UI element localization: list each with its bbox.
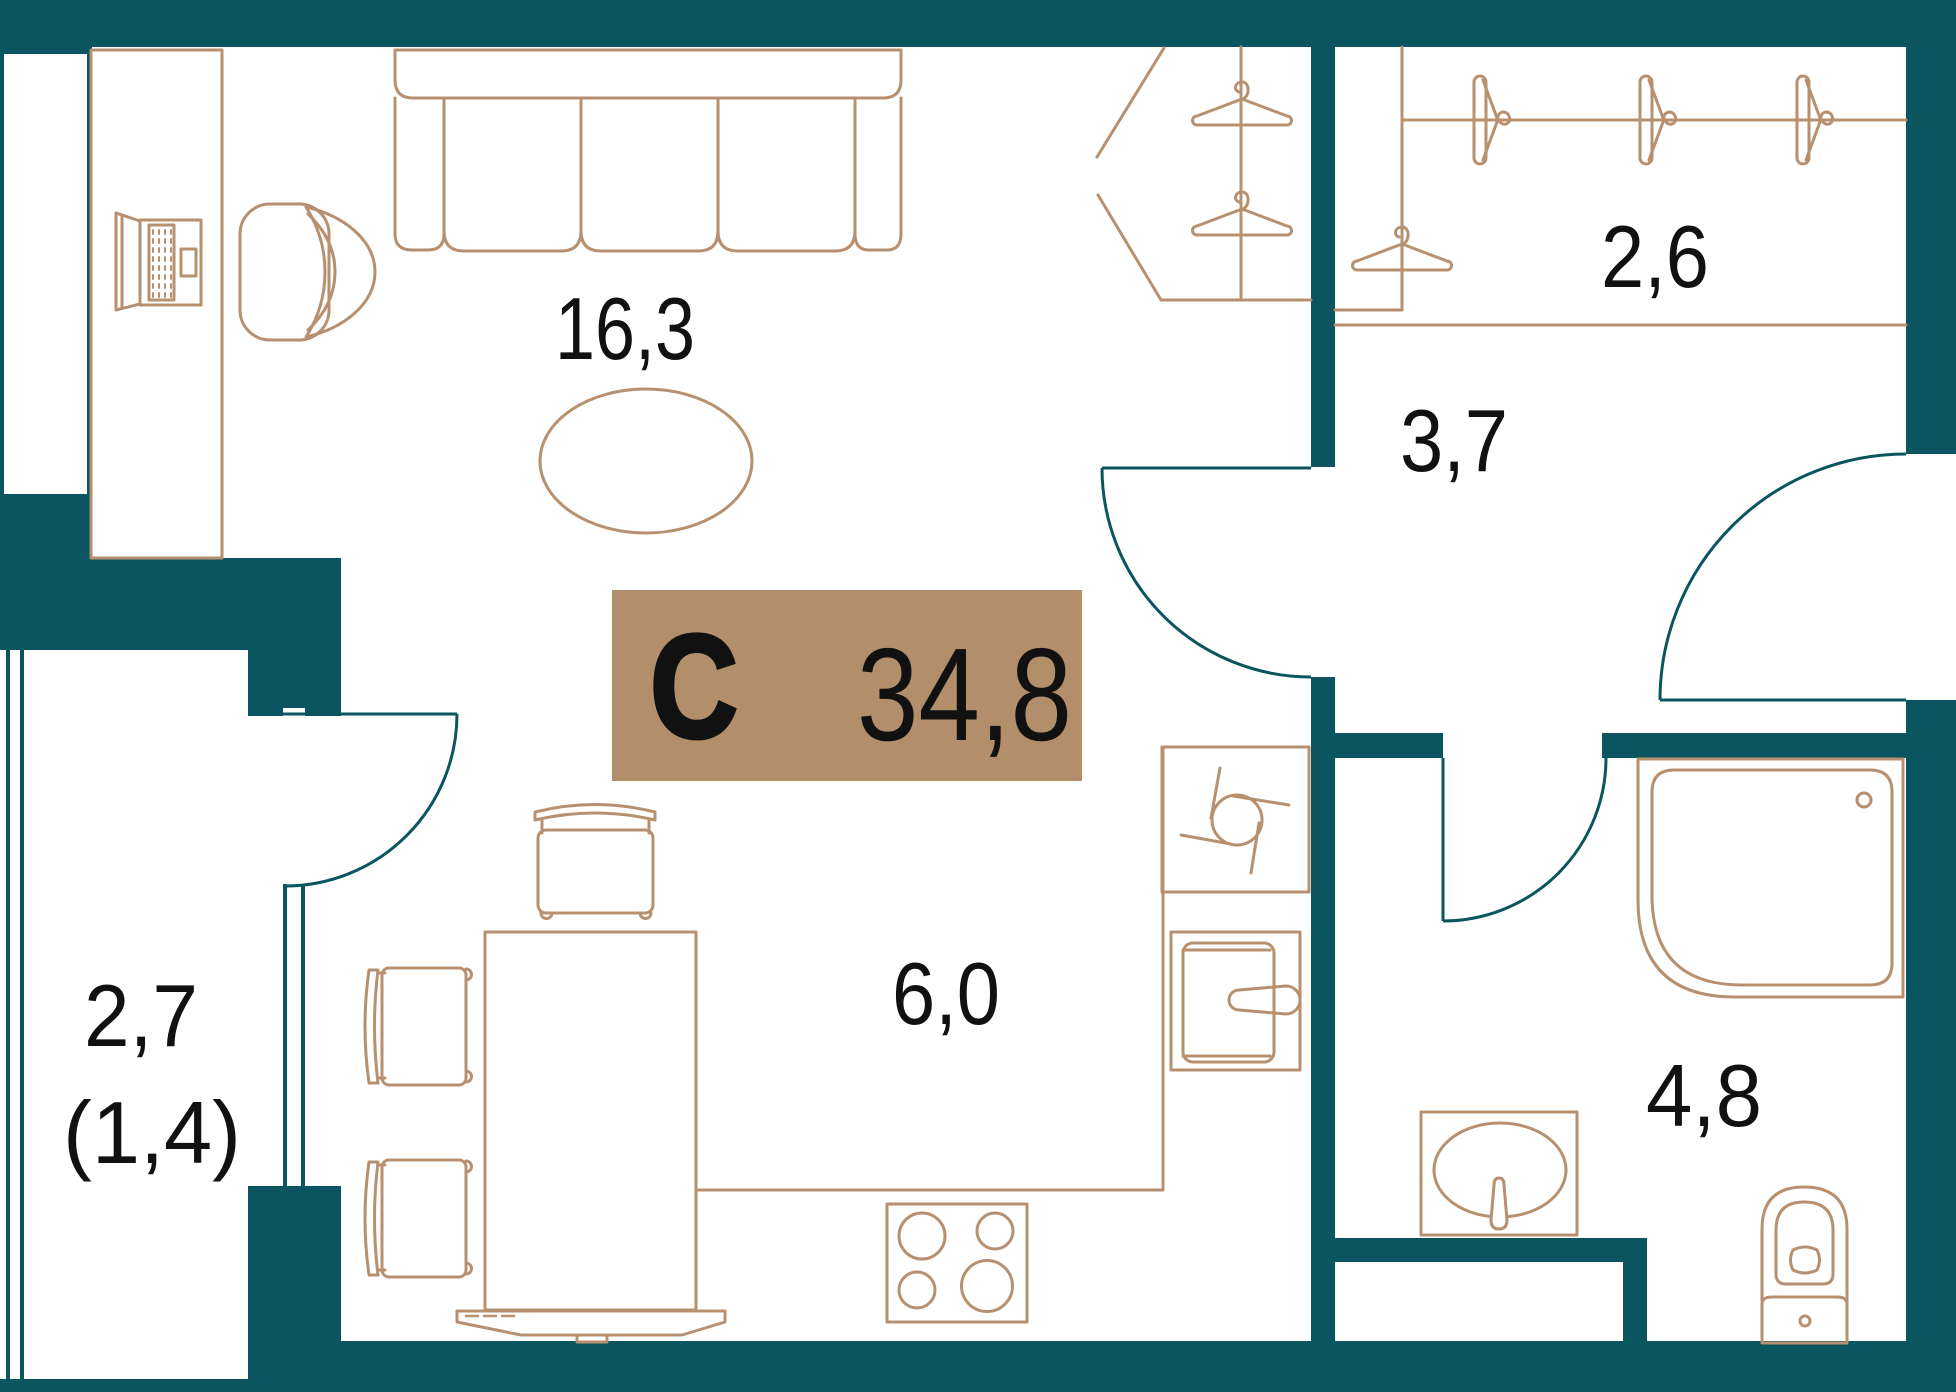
svg-text:4,8: 4,8	[1646, 1046, 1762, 1145]
svg-text:6,0: 6,0	[892, 944, 1000, 1043]
svg-text:34,8: 34,8	[857, 621, 1072, 768]
svg-text:(1,4): (1,4)	[63, 1083, 241, 1182]
svg-text:2,7: 2,7	[84, 966, 198, 1065]
svg-text:3,7: 3,7	[1400, 391, 1508, 490]
svg-text:С: С	[650, 605, 738, 769]
svg-text:16,3: 16,3	[555, 279, 695, 378]
svg-text:2,6: 2,6	[1601, 207, 1709, 306]
